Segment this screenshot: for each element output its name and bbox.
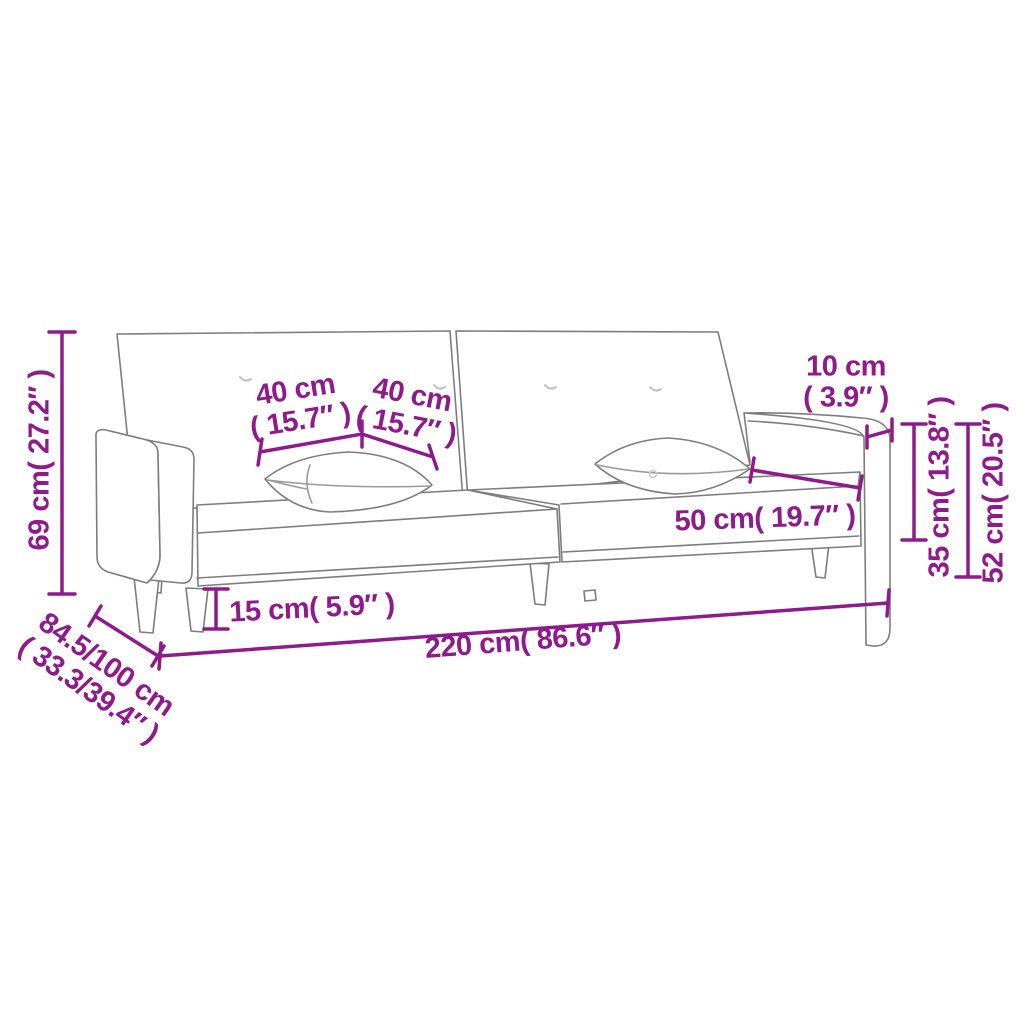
sofa-line-art bbox=[0, 0, 1024, 1024]
label-armrest-10: 10 cm ( 3.9″ ) bbox=[803, 352, 889, 415]
label-backrest-52: 52 cm( 20.5″ ) bbox=[978, 403, 1009, 584]
label-armrest-35: 35 cm( 13.8″ ) bbox=[924, 397, 955, 578]
label-armrest-10-line2: ( 3.9″ ) bbox=[803, 383, 889, 414]
label-armrest-10-line1: 10 cm bbox=[803, 352, 889, 383]
label-height-69: 69 cm( 27.2″ ) bbox=[24, 370, 55, 551]
dimension-diagram: 69 cm( 27.2″ ) 84.5/100 cm ( 33.3/39.4″ … bbox=[0, 0, 1024, 1024]
rail-bracket bbox=[584, 590, 596, 601]
leg-front-left bbox=[134, 577, 159, 633]
leg-front-middle bbox=[530, 563, 549, 605]
label-seat-50: 50 cm( 19.7″ ) bbox=[674, 500, 856, 538]
leg-front-left-2 bbox=[186, 588, 208, 632]
armrest-left bbox=[96, 430, 194, 583]
